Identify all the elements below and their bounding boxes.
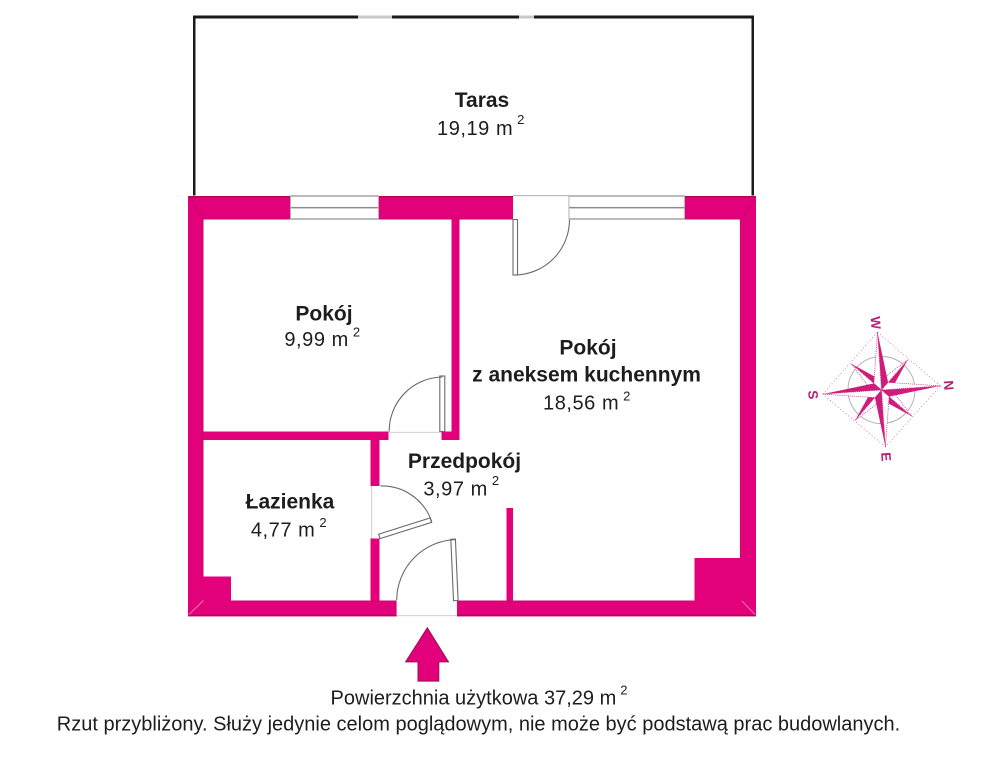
- svg-text:Pokój: Pokój: [295, 303, 352, 326]
- svg-text:3,97 m2: 3,97 m2: [423, 473, 499, 501]
- svg-text:Łazienka: Łazienka: [246, 491, 335, 514]
- svg-text:z aneksem kuchennym: z aneksem kuchennym: [472, 364, 701, 387]
- svg-text:E: E: [878, 452, 894, 462]
- svg-text:N: N: [941, 380, 957, 391]
- svg-text:Pokój: Pokój: [559, 337, 616, 360]
- svg-text:S: S: [805, 390, 821, 400]
- svg-text:9,99 m2: 9,99 m2: [284, 325, 360, 352]
- svg-text:4,77 m2: 4,77 m2: [251, 515, 327, 542]
- svg-text:Rzut przybliżony. Służy jedyni: Rzut przybliżony. Służy jedynie celom po…: [57, 714, 900, 736]
- svg-text:Powierzchnia użytkowa 37,29 m2: Powierzchnia użytkowa 37,29 m2: [331, 683, 628, 710]
- svg-text:18,56 m2: 18,56 m2: [543, 389, 631, 415]
- svg-text:Taras: Taras: [455, 89, 509, 112]
- svg-text:Przedpokój: Przedpokój: [408, 450, 521, 473]
- svg-text:W: W: [868, 316, 884, 330]
- svg-text:19,19 m2: 19,19 m2: [437, 112, 525, 140]
